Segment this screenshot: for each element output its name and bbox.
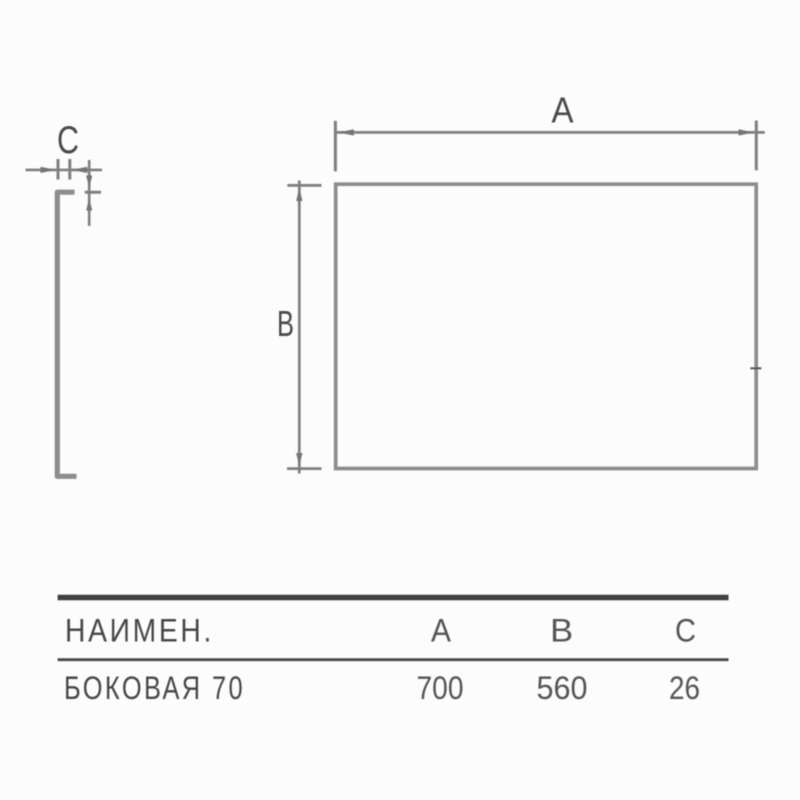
svg-text:НАИМЕН.: НАИМЕН. — [65, 613, 214, 649]
svg-text:С: С — [675, 613, 696, 649]
svg-text:560: 560 — [537, 670, 588, 706]
svg-text:БОКОВАЯ 70: БОКОВАЯ 70 — [64, 670, 245, 706]
svg-text:А: А — [431, 613, 452, 649]
svg-text:C: C — [57, 119, 79, 162]
svg-text:26: 26 — [669, 670, 700, 706]
svg-text:B: B — [277, 303, 294, 344]
svg-text:A: A — [552, 90, 574, 131]
svg-text:В: В — [550, 613, 573, 649]
svg-text:700: 700 — [417, 670, 464, 706]
